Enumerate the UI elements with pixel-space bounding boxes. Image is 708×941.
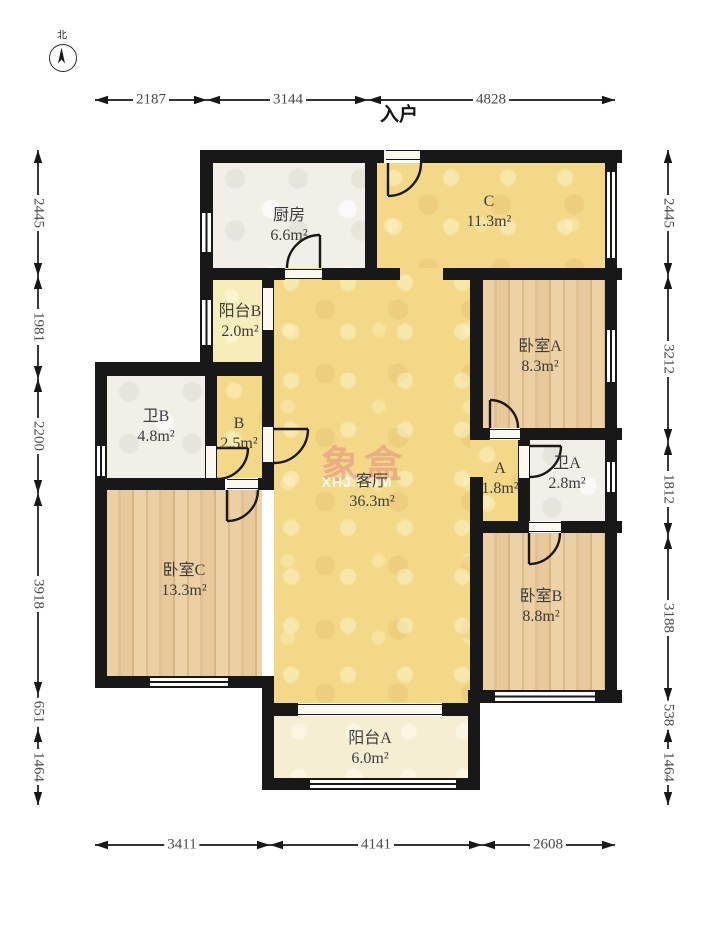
room-label-kitchen: 厨房6.6m² <box>270 206 307 246</box>
room-label-hall-c: C11.3m² <box>467 192 512 232</box>
floorplan-canvas: 北 2187 3144 4828 3411 4141 2608 2445 198… <box>0 0 708 941</box>
room-label-bath-b: 卫B4.8m² <box>137 407 174 447</box>
room-label-bedroom-b: 卧室B8.8m² <box>520 587 563 627</box>
bedroom-c-door-arc <box>227 490 258 521</box>
room-label-hall-a: A1.8m² <box>481 459 518 499</box>
room-label-bedroom-a: 卧室A8.3m² <box>518 337 562 377</box>
room-label-bedroom-c: 卧室C13.3m² <box>161 561 206 601</box>
entry-door-arc <box>388 163 421 196</box>
entry-label: 入户 <box>380 100 418 127</box>
room-label-balcony-a: 阳台A6.0m² <box>348 729 392 769</box>
bedroom-b-door-arc <box>529 533 560 564</box>
room-label-living: 客厅36.3m² <box>349 472 394 512</box>
hall-b-door-arc <box>274 429 308 463</box>
room-label-balcony-b: 阳台B2.0m² <box>219 302 262 342</box>
room-label-bath-a: 卫A2.8m² <box>548 454 585 494</box>
room-label-hall-b: B2.5m² <box>220 414 257 454</box>
bedroom-a-door-arc <box>490 400 518 428</box>
